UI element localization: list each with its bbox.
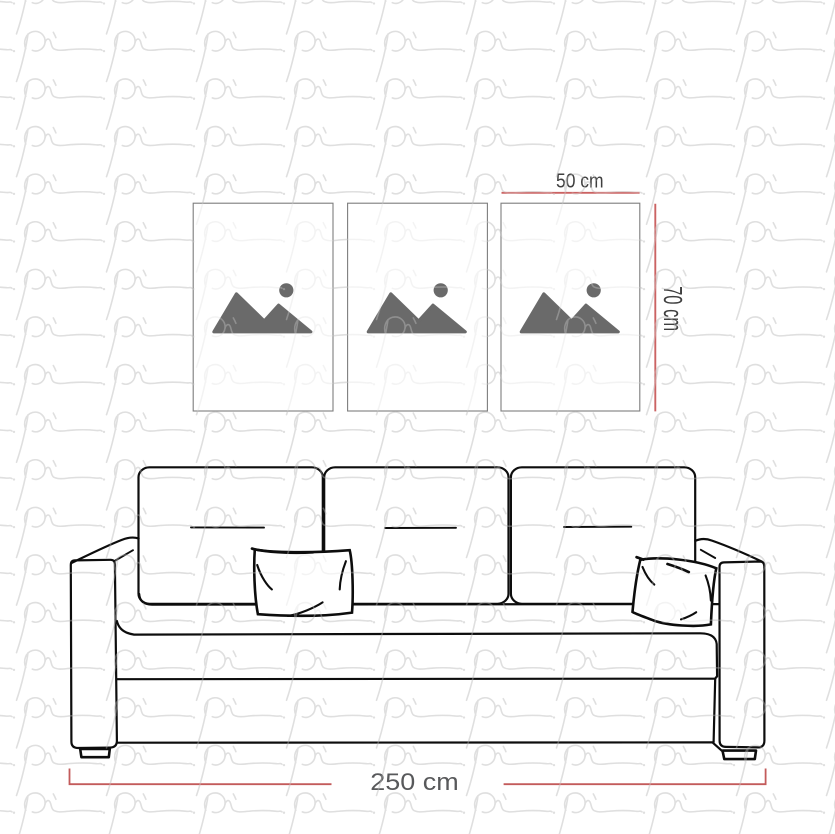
svg-text:70 cm: 70 cm — [658, 286, 686, 331]
svg-text:50 cm: 50 cm — [556, 170, 604, 192]
